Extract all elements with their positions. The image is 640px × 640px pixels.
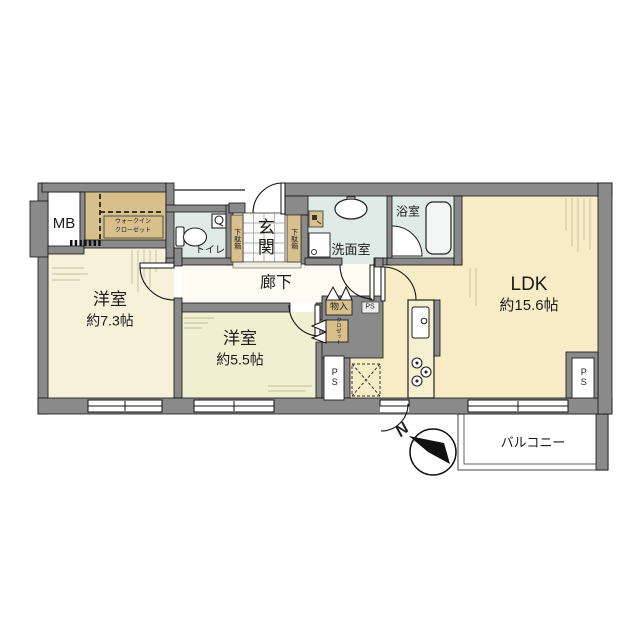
western2-door-leaf bbox=[315, 305, 320, 337]
bathtub-icon bbox=[426, 202, 451, 254]
front-door-leaf bbox=[281, 183, 285, 214]
entrance-pillar bbox=[285, 196, 308, 215]
ldk-size-label: 約15.6帖 bbox=[499, 298, 558, 314]
ldk-label: LDK bbox=[511, 275, 548, 295]
toilet-top-wall bbox=[166, 205, 230, 212]
meter-box-label: MB bbox=[53, 216, 76, 232]
washroom-left-wall bbox=[301, 215, 308, 264]
vanity-sink-icon bbox=[335, 199, 367, 219]
entrance-label: 玄関 bbox=[255, 218, 273, 258]
north-arrow bbox=[409, 429, 456, 475]
balcony-partition-wall bbox=[596, 414, 608, 470]
top-wall-left bbox=[42, 183, 166, 192]
washroom-label: 洗面室 bbox=[331, 243, 370, 257]
corridor-east-stub bbox=[375, 258, 383, 267]
wic-right-wall bbox=[166, 183, 174, 265]
bathroom-label: 浴室 bbox=[396, 206, 420, 219]
kitchen-partition bbox=[434, 300, 440, 356]
walkin-closet-label-line1: ウォークイン bbox=[115, 219, 151, 225]
corridor-label: 廊下 bbox=[260, 276, 292, 293]
front-door-arc bbox=[253, 183, 283, 213]
western1-door-leaf bbox=[140, 263, 174, 268]
kitchen-door-leaf bbox=[380, 400, 409, 406]
toilet-label: トイレ bbox=[195, 246, 225, 257]
western-rooms-divider bbox=[174, 298, 182, 398]
corridor-bottom-wall bbox=[182, 303, 290, 312]
ps-niche-wall-right bbox=[344, 358, 350, 398]
entrance-left-stub bbox=[229, 203, 245, 213]
ps-label-near-storage: PS bbox=[365, 303, 374, 310]
meter-box-protrusion-wall bbox=[30, 201, 48, 257]
western2-label: 洋室 bbox=[223, 330, 257, 348]
bathroom-left-wall bbox=[387, 196, 392, 265]
washroom-door-leaf bbox=[370, 265, 374, 300]
floor-plan-page: MB ウォークイン クローゼット トイレ 下駄箱 玄関 下駄箱 洗面室 浴室 廊… bbox=[0, 0, 640, 640]
shoe-cabinet-right-label: 下駄箱 bbox=[290, 229, 297, 250]
right-outer-wall bbox=[598, 183, 612, 414]
bathroom-right-wall bbox=[454, 196, 462, 265]
western1-size-label: 約7.3帖 bbox=[86, 314, 133, 329]
top-wall-right bbox=[283, 183, 612, 196]
bathroom-bottom-wall bbox=[387, 258, 462, 265]
shoe-cabinet-left-label: 下駄箱 bbox=[233, 229, 240, 250]
corridor-west-wall-upper bbox=[174, 248, 182, 266]
ps-label-kitchen: PS bbox=[329, 367, 338, 387]
ldk-door-leaf bbox=[381, 267, 385, 301]
small-closet-label: クロゼット bbox=[334, 317, 340, 345]
ps-label-ldk-corner: PS bbox=[578, 367, 587, 387]
washroom-bottom-wall-left bbox=[305, 258, 342, 265]
walkin-closet-label-line2: クローゼット bbox=[115, 228, 151, 234]
balcony-label: バルコニー bbox=[501, 436, 566, 450]
entrance-step bbox=[233, 262, 301, 268]
mb-bottom-wall bbox=[48, 246, 84, 254]
western1-label: 洋室 bbox=[93, 291, 127, 309]
storage-label: 物入 bbox=[330, 302, 348, 311]
wic-bottom-wall bbox=[84, 240, 166, 248]
western2-size-label: 約5.5帖 bbox=[216, 353, 263, 368]
